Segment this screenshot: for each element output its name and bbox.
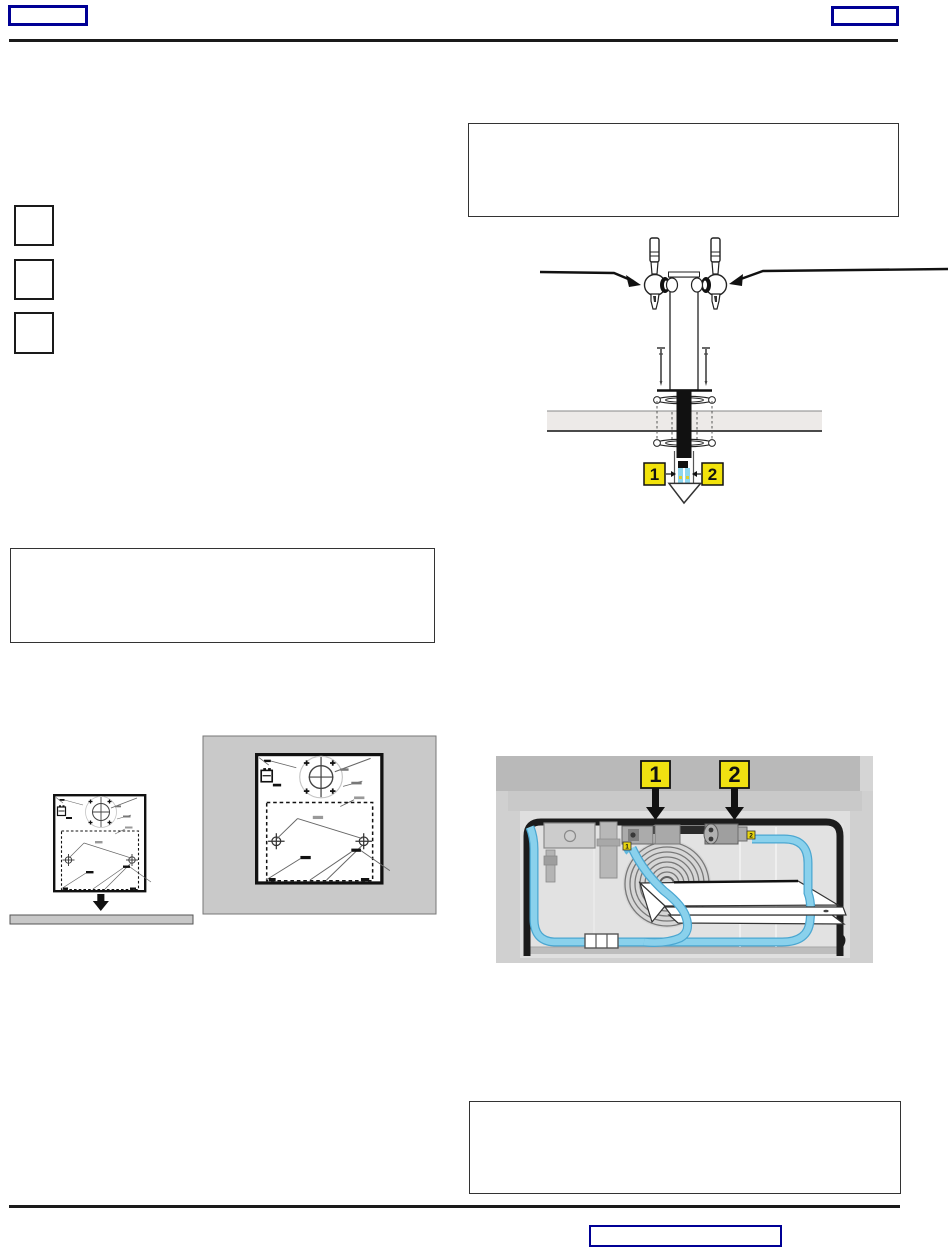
svg-text:1: 1 xyxy=(649,762,661,787)
svg-text:2: 2 xyxy=(749,833,753,840)
svg-text:1: 1 xyxy=(650,465,659,484)
svg-text:1: 1 xyxy=(625,844,629,851)
svg-text:2: 2 xyxy=(728,762,740,787)
svg-text:2: 2 xyxy=(708,465,717,484)
